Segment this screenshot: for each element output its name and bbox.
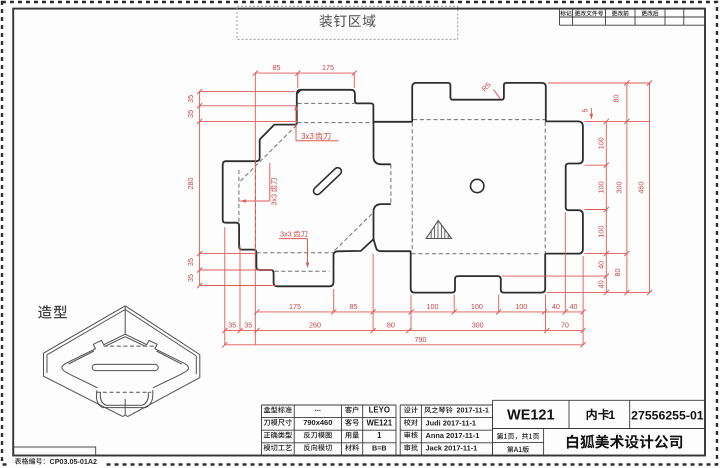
svg-text:3x3: 3x3 (280, 229, 292, 238)
svg-text:3x3: 3x3 (301, 132, 314, 141)
svg-text:35: 35 (186, 274, 195, 282)
svg-text:300: 300 (615, 182, 624, 194)
svg-text:35: 35 (186, 258, 195, 266)
svg-text:27556255-01: 27556255-01 (631, 408, 704, 422)
svg-text:100: 100 (596, 226, 605, 238)
svg-text:40: 40 (596, 280, 605, 288)
svg-text:100: 100 (596, 181, 605, 193)
svg-text:WE121: WE121 (507, 408, 555, 424)
svg-text:35: 35 (244, 321, 252, 330)
svg-text:100: 100 (427, 302, 439, 311)
svg-text:175: 175 (322, 63, 334, 72)
svg-text:80: 80 (612, 95, 621, 103)
svg-text:40: 40 (570, 302, 578, 311)
svg-text:100: 100 (515, 302, 527, 311)
svg-text:85: 85 (273, 63, 281, 72)
svg-text:260: 260 (309, 321, 321, 330)
svg-text:Jack 2017-11-1: Jack 2017-11-1 (426, 444, 478, 453)
svg-text:80: 80 (387, 321, 395, 330)
svg-text:40: 40 (552, 302, 560, 311)
svg-text:280: 280 (186, 178, 195, 190)
svg-text:Anna 2017-11-1: Anna 2017-11-1 (426, 431, 480, 440)
svg-text:LEYO: LEYO (369, 406, 390, 415)
svg-text:35: 35 (186, 95, 195, 103)
svg-text:80: 80 (613, 269, 622, 277)
svg-text:B=B: B=B (372, 443, 387, 452)
svg-text:...: ... (315, 404, 321, 413)
svg-text:WE121: WE121 (367, 418, 393, 427)
svg-text:100: 100 (596, 137, 605, 149)
svg-text:CP03.05-01A2: CP03.05-01A2 (50, 457, 98, 466)
svg-text:2017-11-1: 2017-11-1 (457, 406, 489, 415)
svg-text:100: 100 (471, 302, 483, 311)
svg-text:460: 460 (637, 182, 646, 194)
svg-text:35: 35 (228, 321, 236, 330)
svg-text:790x460: 790x460 (303, 418, 332, 427)
svg-text:Judi 2017-11-1: Judi 2017-11-1 (426, 418, 477, 427)
svg-text:40: 40 (596, 261, 605, 269)
svg-text:70: 70 (561, 321, 569, 330)
svg-text:790: 790 (415, 335, 427, 344)
svg-text:3x3: 3x3 (269, 194, 278, 206)
svg-text:1: 1 (608, 408, 615, 422)
svg-text:35: 35 (186, 110, 195, 118)
svg-text:175: 175 (289, 302, 301, 311)
svg-text:1: 1 (377, 431, 382, 440)
svg-text:5: 5 (580, 109, 589, 113)
svg-text:85: 85 (350, 302, 358, 311)
svg-text:300: 300 (472, 321, 484, 330)
